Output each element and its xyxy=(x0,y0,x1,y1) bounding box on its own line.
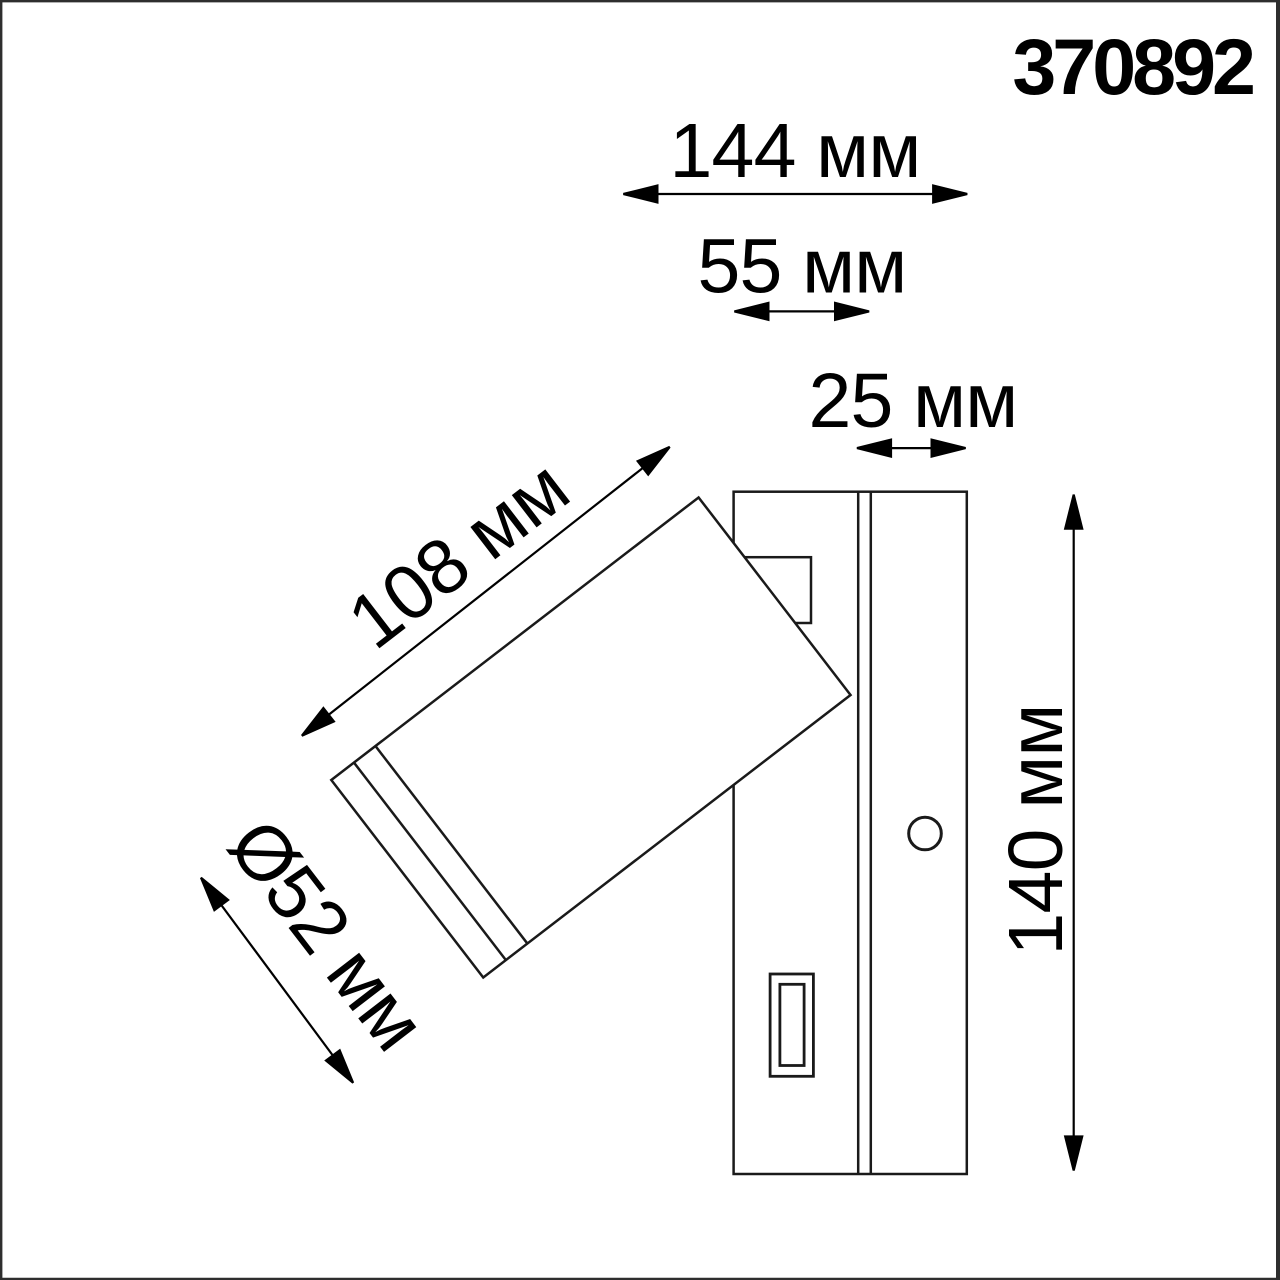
svg-text:144 мм: 144 мм xyxy=(670,108,921,194)
svg-text:140 мм: 140 мм xyxy=(993,705,1079,956)
svg-text:55 мм: 55 мм xyxy=(698,224,907,310)
svg-text:25 мм: 25 мм xyxy=(809,358,1018,444)
svg-text:370892: 370892 xyxy=(1012,22,1253,111)
